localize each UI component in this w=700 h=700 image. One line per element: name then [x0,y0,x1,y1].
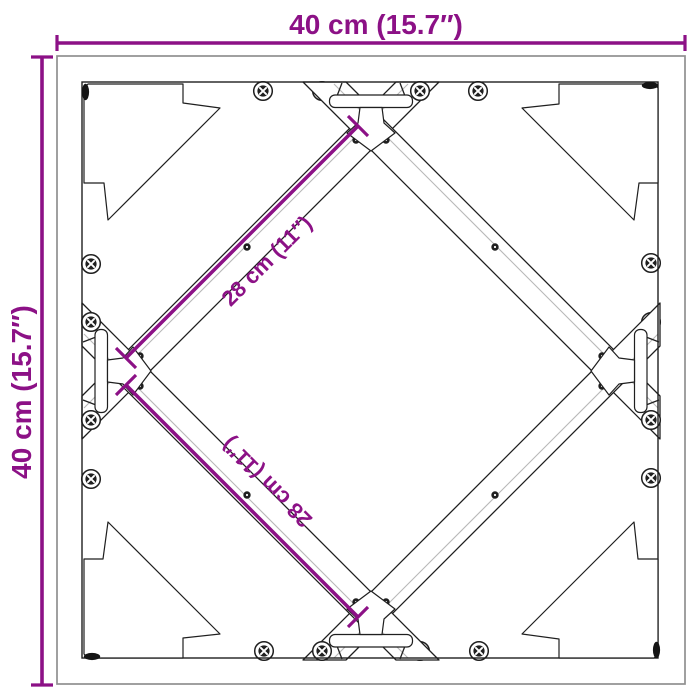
corner-bracket-bottom-left [84,522,220,660]
corner-bracket-bottom-right [522,522,660,658]
corner-bracket-top-left [82,84,220,220]
height-dimension-label: 40 cm (15.7″) [6,305,37,479]
table-frame-diagram: 40 cm (15.7″) 40 cm (15.7″) 28 cm (11″) … [0,0,700,700]
corner-bracket-top-right [522,82,658,220]
frame-drawing: 40 cm (15.7″) 40 cm (15.7″) 28 cm (11″) … [0,0,700,700]
frame-inner-edge [82,82,658,658]
width-dimension-label: 40 cm (15.7″) [289,9,463,40]
